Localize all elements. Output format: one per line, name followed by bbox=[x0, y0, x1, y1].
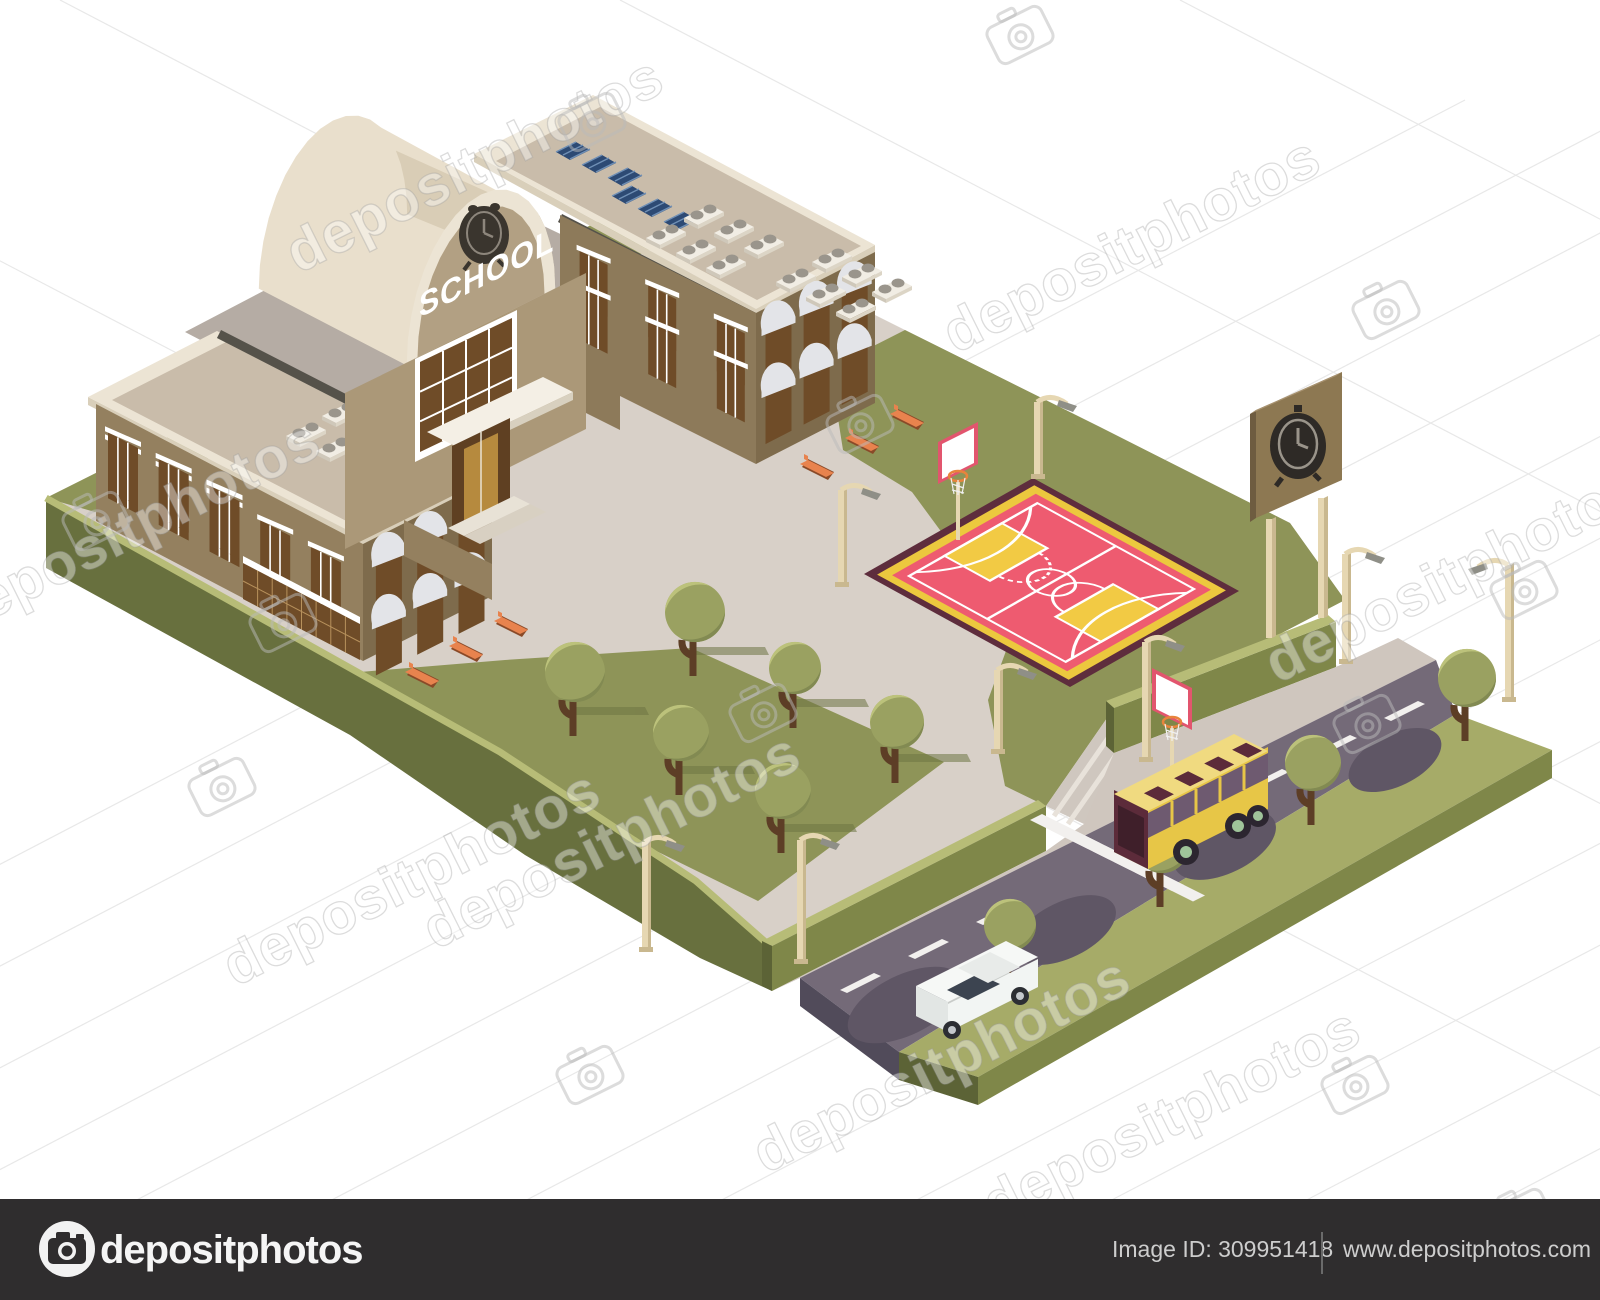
svg-text:www.depositphotos.com: www.depositphotos.com bbox=[1342, 1236, 1591, 1262]
svg-text:depositphotos: depositphotos bbox=[100, 1228, 363, 1272]
svg-text:Image ID: 309951418: Image ID: 309951418 bbox=[1112, 1236, 1333, 1262]
